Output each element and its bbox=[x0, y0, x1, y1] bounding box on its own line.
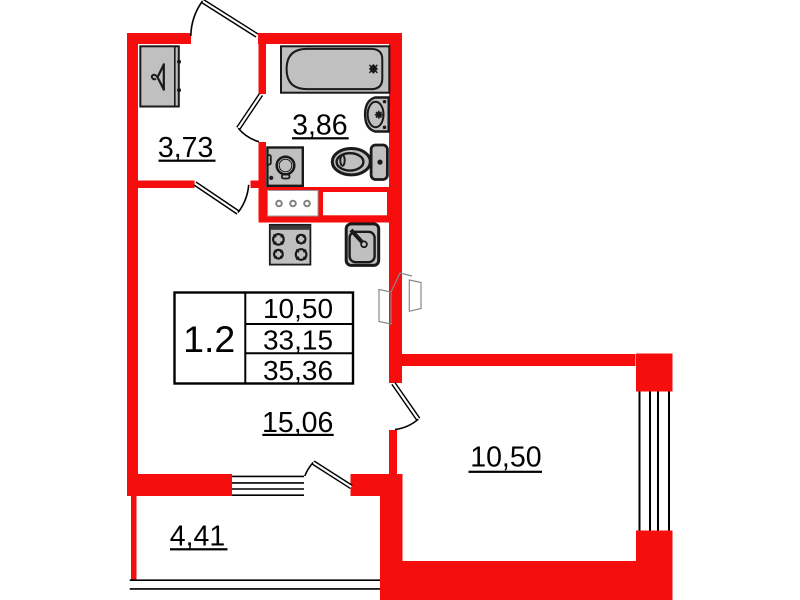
svg-text:3,73: 3,73 bbox=[158, 132, 213, 164]
svg-text:4,41: 4,41 bbox=[170, 521, 225, 553]
svg-text:33,15: 33,15 bbox=[263, 325, 333, 356]
svg-text:3,86: 3,86 bbox=[292, 110, 347, 142]
svg-text:10,50: 10,50 bbox=[470, 442, 541, 474]
svg-text:35,36: 35,36 bbox=[263, 355, 333, 386]
svg-text:10,50: 10,50 bbox=[263, 293, 333, 324]
svg-text:1.2: 1.2 bbox=[183, 318, 235, 360]
